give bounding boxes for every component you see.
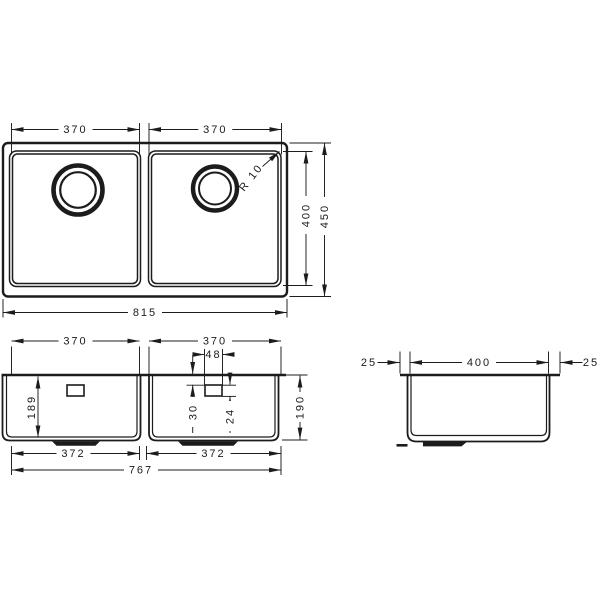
drain-boss-side (423, 442, 467, 447)
front-extension-lines (12, 347, 308, 476)
bowl-left-rim (10, 151, 141, 287)
corner-radius-label: R 10 (237, 162, 266, 194)
side-flange-left-label: 25 (361, 357, 377, 369)
overflow-height-label: 24 (225, 408, 237, 424)
overflow-left (67, 385, 84, 396)
drain-left-inner (60, 172, 96, 208)
front-view: 370 370 48 30 24 189 190 372 372 767 (2, 335, 308, 477)
plan-dimension-lines (3, 130, 325, 313)
front-dimension-lines (12, 341, 301, 470)
overflow-width-label: 48 (205, 349, 221, 361)
drain-right-inner (199, 173, 231, 205)
drawing-page: 370 370 R 10 400 450 815 (0, 0, 600, 600)
plan-overall-width-label: 815 (133, 307, 157, 319)
mounting-tab-side (397, 444, 408, 447)
side-view: 25 400 25 (361, 352, 599, 447)
plan-extension-lines (3, 123, 331, 318)
plan-view: 370 370 R 10 400 450 815 (3, 123, 331, 319)
front-bowl-width-left-label: 370 (63, 336, 87, 348)
front-overall-bottom-width-label: 767 (129, 465, 153, 477)
plan-bowl-depth-label: 400 (301, 203, 313, 227)
side-flange-right-label: 25 (583, 357, 599, 369)
front-bottom-width-left-label: 372 (61, 448, 85, 460)
overflow-offset-label: 30 (187, 404, 199, 420)
drain-boss-right (178, 441, 238, 446)
bowl-depth-inner-label: 189 (26, 395, 38, 419)
sink-outline-plan (3, 143, 287, 297)
bowl-depth-outer-label: 190 (295, 395, 307, 419)
plan-bowl-width-left-label: 370 (63, 124, 87, 136)
overflow-right (205, 385, 222, 396)
front-bowl-width-right-label: 370 (203, 336, 227, 348)
plan-overall-depth-label: 450 (319, 204, 331, 228)
sink-dimension-drawing: 370 370 R 10 400 450 815 (0, 0, 600, 600)
plan-bowl-width-right-label: 370 (203, 124, 227, 136)
side-depth-label: 400 (467, 357, 491, 369)
front-bottom-width-right-label: 372 (201, 448, 225, 460)
drain-boss-left (52, 441, 100, 446)
side-inner-profile (411, 376, 547, 436)
side-outer-profile (408, 376, 550, 442)
